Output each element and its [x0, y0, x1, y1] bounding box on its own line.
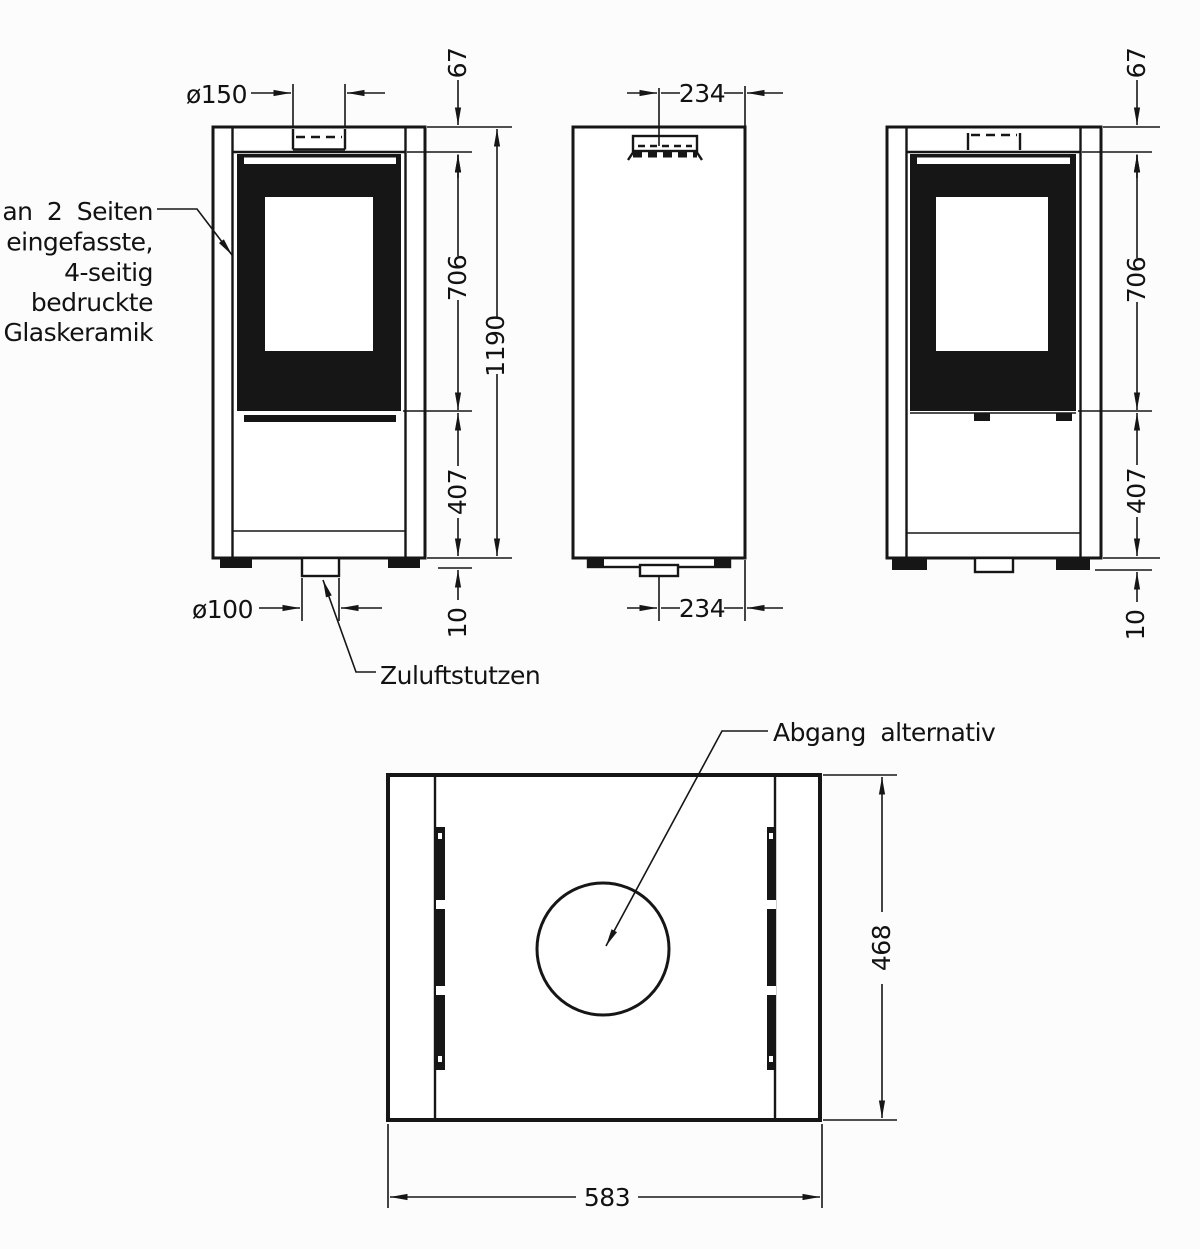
dim-top-offset: 67 — [443, 48, 472, 79]
dim-width: 583 — [584, 1183, 630, 1212]
dim-inlet-offset: 234 — [679, 594, 725, 623]
rear-view — [887, 127, 1101, 572]
glass-note-line-4: bedruckte — [31, 288, 153, 317]
dim-flue-diameter: ø150 — [186, 80, 247, 109]
dim-base-height: 10 — [1121, 610, 1150, 641]
hinge-screw-slot — [769, 1056, 773, 1062]
dim-air-inlet-diameter: ø100 — [192, 595, 253, 624]
front-air-inlet-stub — [302, 558, 339, 576]
rear-door-tab — [1056, 413, 1072, 421]
rear-left-foot — [892, 558, 927, 570]
hinge-gap — [767, 900, 776, 909]
rear-door-top-slot — [917, 158, 1070, 165]
front-view — [213, 127, 425, 576]
dim-glass-section: 706 — [1122, 257, 1151, 303]
hinge-screw-slot — [438, 1056, 442, 1062]
hinge-gap — [767, 986, 776, 995]
dim-lower-section: 407 — [1122, 468, 1151, 514]
rear-glass-window — [936, 197, 1048, 351]
stove-dimension-drawing: ø150 67 706 407 10 1190 ø100 Zuluftst — [0, 0, 1200, 1249]
side-view — [573, 127, 745, 576]
dim-base-height: 10 — [443, 608, 472, 639]
dim-total-height: 1190 — [481, 315, 510, 377]
glass-note-line-2: eingefasste, — [6, 228, 153, 257]
hinge-screw-slot — [438, 833, 442, 839]
top-right-hinge-strip — [767, 827, 776, 1070]
glass-note-line-1: an 2 Seiten — [2, 197, 153, 226]
hinge-gap — [436, 986, 445, 995]
front-right-foot — [388, 558, 420, 568]
front-glass-window — [265, 197, 373, 351]
glass-ceramic-note: an 2 Seiten eingefasste, 4-seitig bedruc… — [2, 197, 232, 347]
dim-flue-offset: 234 — [679, 79, 725, 108]
air-inlet-label: Zuluftstutzen — [380, 661, 540, 690]
technical-drawing-page: ø150 67 706 407 10 1190 ø100 Zuluftst — [0, 0, 1200, 1249]
top-view: Abgang alternativ — [388, 718, 996, 1120]
top-left-hinge-strip — [436, 827, 445, 1070]
rear-right-foot — [1056, 558, 1090, 570]
dim-lower-section: 407 — [443, 469, 472, 515]
top-body-outline — [388, 775, 820, 1120]
rear-door-tab — [974, 413, 990, 421]
glass-note-line-3: 4-seitig — [64, 258, 153, 287]
hinge-gap — [436, 900, 445, 909]
side-body-outline — [573, 127, 745, 558]
dim-depth: 468 — [867, 925, 896, 971]
dim-glass-section: 706 — [443, 255, 472, 301]
glass-note-line-5: Glaskeramik — [3, 318, 154, 347]
front-door-top-slot — [244, 158, 396, 165]
front-door-bottom-bar — [244, 415, 396, 422]
hinge-strip — [767, 827, 776, 1070]
hinge-strip — [436, 827, 445, 1070]
dim-top-offset: 67 — [1122, 48, 1151, 79]
front-left-foot — [220, 558, 252, 568]
side-rear-foot — [588, 558, 604, 567]
flue-socket-outline — [633, 136, 697, 151]
side-front-foot — [714, 558, 730, 567]
hinge-screw-slot — [769, 833, 773, 839]
side-air-inlet-stub — [640, 565, 678, 576]
air-inlet-leader-line — [323, 580, 376, 672]
side-base — [588, 558, 730, 576]
rear-air-inlet-stub — [975, 558, 1013, 572]
alt-outlet-label: Abgang alternativ — [773, 718, 996, 747]
